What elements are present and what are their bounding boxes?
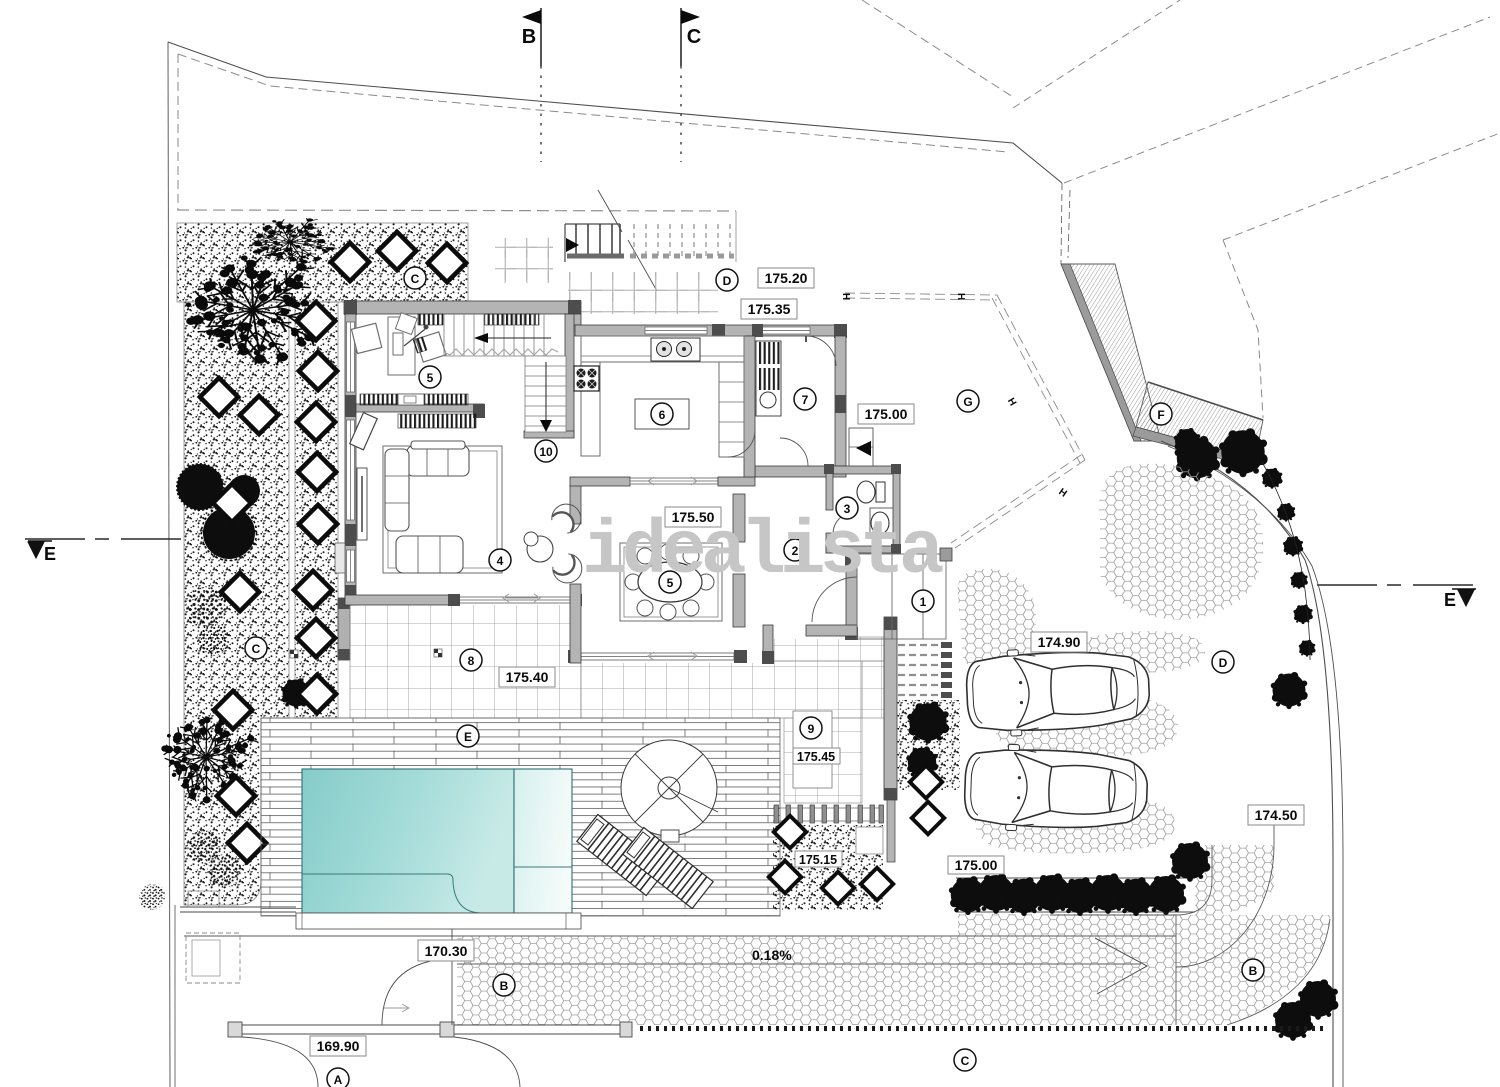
- svg-text:C: C: [411, 272, 420, 286]
- svg-text:9: 9: [808, 722, 815, 736]
- svg-text:170.30: 170.30: [425, 943, 468, 959]
- svg-text:H: H: [840, 293, 851, 300]
- svg-text:B: B: [522, 26, 536, 48]
- svg-text:idealista: idealista: [582, 509, 943, 595]
- svg-text:B: B: [1249, 964, 1258, 978]
- svg-text:C: C: [252, 642, 261, 656]
- svg-text:5: 5: [427, 371, 434, 385]
- svg-text:4: 4: [497, 554, 504, 568]
- svg-text:H: H: [955, 293, 966, 300]
- svg-text:175.20: 175.20: [765, 270, 808, 286]
- svg-text:F: F: [1157, 408, 1164, 422]
- svg-text:B: B: [500, 979, 509, 993]
- svg-text:D: D: [723, 274, 732, 288]
- svg-text:6: 6: [659, 408, 666, 422]
- svg-text:174.90: 174.90: [1038, 634, 1081, 650]
- svg-text:175.15: 175.15: [799, 853, 837, 867]
- svg-text:G: G: [963, 395, 972, 409]
- svg-text:7: 7: [802, 393, 809, 407]
- svg-text:E: E: [1444, 590, 1456, 610]
- svg-text:E: E: [44, 544, 56, 564]
- svg-text:A: A: [334, 1073, 343, 1087]
- svg-text:E: E: [464, 730, 472, 744]
- svg-text:175.50: 175.50: [672, 509, 715, 525]
- svg-text:C: C: [961, 1054, 970, 1068]
- svg-text:174.50: 174.50: [1255, 807, 1298, 823]
- svg-text:175.35: 175.35: [748, 301, 791, 317]
- svg-text:175.40: 175.40: [506, 669, 549, 685]
- svg-text:10: 10: [539, 445, 553, 459]
- svg-text:8: 8: [468, 654, 475, 668]
- svg-text:D: D: [1219, 656, 1228, 670]
- svg-text:175.00: 175.00: [955, 857, 998, 873]
- svg-text:1: 1: [920, 595, 927, 609]
- svg-text:C: C: [687, 26, 701, 48]
- svg-text:169.90: 169.90: [317, 1038, 360, 1054]
- svg-text:0.18%: 0.18%: [752, 947, 792, 963]
- svg-text:175.45: 175.45: [797, 750, 835, 764]
- svg-text:175.00: 175.00: [865, 406, 908, 422]
